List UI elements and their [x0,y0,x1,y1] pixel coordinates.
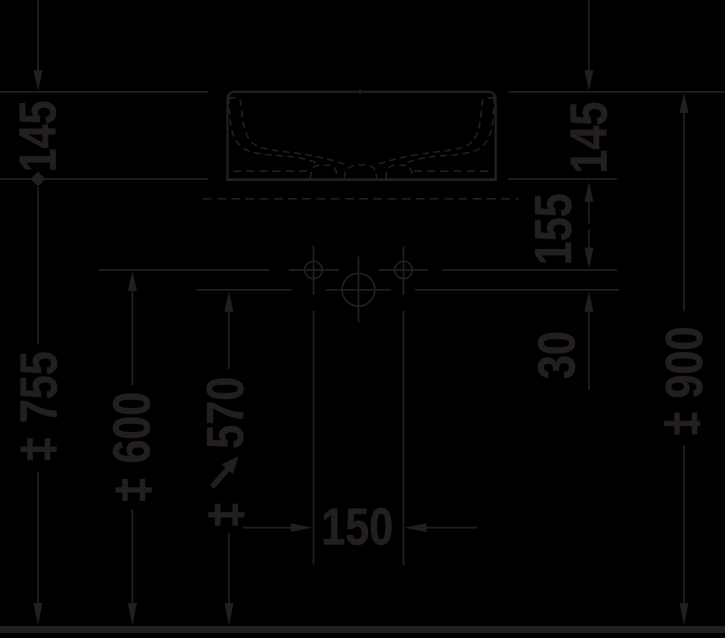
svg-text:30: 30 [529,331,587,379]
svg-text:150: 150 [321,499,393,557]
svg-text:900: 900 [656,327,714,399]
svg-text:145: 145 [561,102,619,174]
svg-text:145: 145 [10,100,68,172]
svg-text:755: 755 [11,351,69,423]
svg-text:600: 600 [104,392,162,464]
svg-text:155: 155 [525,193,583,265]
svg-text:570: 570 [197,377,255,449]
